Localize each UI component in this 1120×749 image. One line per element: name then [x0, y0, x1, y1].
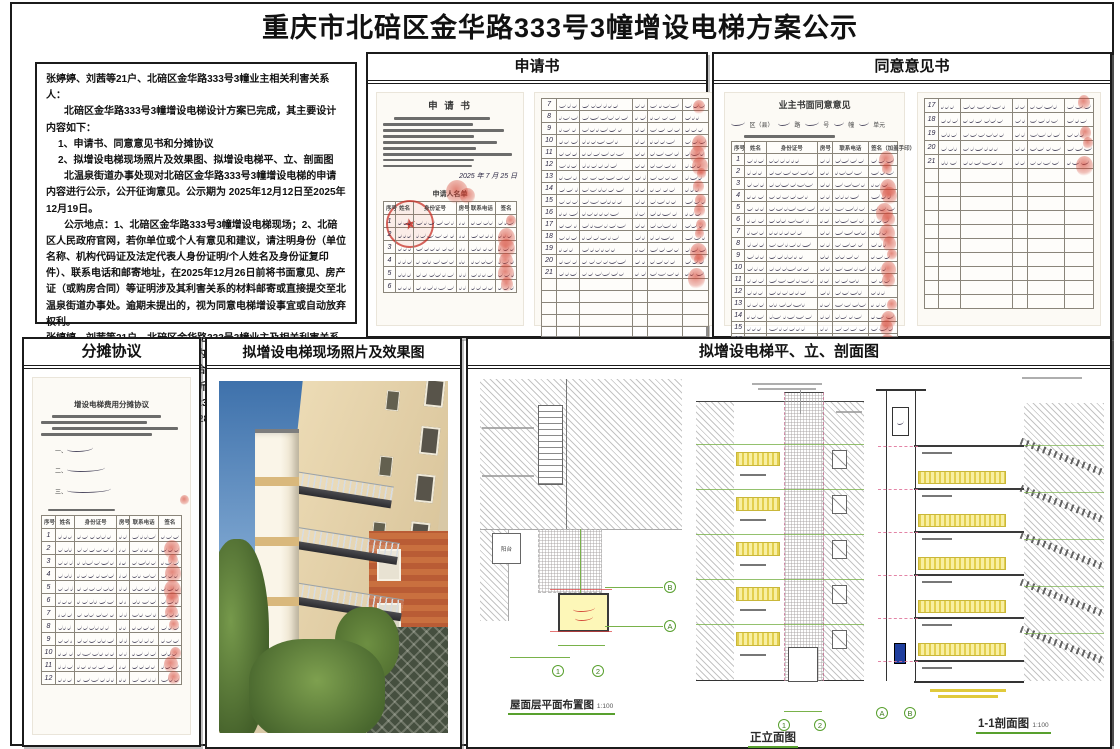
handwriting-mark	[635, 149, 640, 156]
table-cell	[869, 262, 897, 273]
handwriting-mark	[824, 324, 828, 331]
handwriting-mark	[663, 221, 671, 228]
table-cell	[939, 253, 961, 266]
handwriting-mark	[140, 545, 143, 552]
table-cell	[767, 310, 818, 321]
table-header-cell: 房号	[117, 516, 130, 528]
handwriting-mark	[124, 610, 127, 617]
cost-sharing-note	[41, 509, 126, 512]
handwriting-mark	[608, 101, 612, 108]
table-cell	[818, 214, 833, 225]
handwriting-mark	[783, 324, 788, 331]
table-cell	[56, 581, 75, 593]
handwriting-mark	[504, 270, 510, 277]
table-cell	[767, 286, 818, 297]
handwriting-mark	[671, 173, 679, 180]
handwriting-mark	[507, 231, 512, 238]
handwriting-mark	[824, 300, 830, 307]
table-cell	[75, 620, 117, 632]
handwriting-mark	[119, 662, 121, 669]
handwriting-mark	[871, 240, 877, 247]
table-cell	[557, 123, 580, 134]
handwriting-mark	[820, 228, 825, 235]
handwriting-mark	[77, 584, 81, 591]
handwriting-mark	[564, 257, 571, 264]
handwriting-mark	[759, 228, 764, 235]
table-cell	[159, 542, 181, 554]
table-cell	[159, 659, 181, 671]
table-cell	[961, 225, 1013, 238]
handwriting-mark	[850, 192, 859, 199]
table-cell	[414, 267, 456, 279]
handwriting-mark	[89, 584, 95, 591]
handwriting-mark	[796, 180, 804, 188]
handwriting-mark	[123, 584, 127, 591]
handwriting-mark	[858, 240, 863, 247]
handwriting-mark	[169, 610, 174, 617]
handwriting-mark	[596, 101, 602, 108]
table-cell	[833, 214, 869, 225]
handwriting-mark	[507, 218, 514, 225]
handwriting-mark	[769, 288, 776, 295]
table-cell	[633, 255, 648, 266]
handwriting-mark	[131, 584, 136, 591]
handwriting-mark	[608, 113, 614, 120]
table-cell: 8	[732, 238, 745, 249]
handwriting-mark	[1030, 116, 1038, 123]
handwriting-mark	[563, 245, 568, 252]
table-cell: 5	[42, 581, 56, 593]
handwriting-mark	[165, 557, 173, 564]
table-cell	[396, 228, 414, 240]
handwriting-mark	[940, 102, 944, 109]
table-cell	[580, 171, 633, 182]
handwriting-mark	[758, 192, 764, 199]
handwriting-mark	[757, 312, 764, 319]
table-row: 3	[732, 178, 897, 190]
table-cell	[833, 154, 869, 165]
handwriting-mark	[639, 245, 646, 252]
handwriting-mark	[1072, 158, 1080, 165]
handwriting-mark	[881, 300, 886, 307]
handwriting-mark	[984, 144, 988, 151]
table-cell	[869, 250, 897, 261]
handwriting-mark	[786, 276, 794, 284]
applicant-signature-table: 序号姓名身份证号房号联系电话签名123456	[383, 201, 517, 293]
handwriting-mark	[820, 324, 824, 331]
handwriting-mark	[777, 276, 786, 284]
handwriting-mark	[984, 116, 990, 123]
handwriting-mark	[790, 192, 796, 199]
table-cell	[396, 267, 414, 279]
handwriting-mark	[846, 252, 853, 259]
table-cell	[130, 672, 159, 684]
table-cell: 1	[384, 215, 396, 227]
handwriting-mark	[886, 312, 894, 319]
handwriting-mark	[102, 610, 109, 617]
elevation-shaft-column	[784, 392, 824, 681]
table-cell	[396, 215, 414, 227]
table-cell	[767, 274, 818, 285]
table-row: 12	[542, 159, 708, 171]
handwriting-mark	[67, 609, 73, 616]
table-empty-row	[542, 315, 708, 327]
photo-bush	[249, 639, 385, 733]
handwriting-mark	[940, 144, 946, 151]
table-cell	[580, 159, 633, 170]
handwriting-mark	[131, 531, 139, 538]
table-cell: 9	[42, 633, 56, 645]
handwriting-mark	[805, 216, 808, 223]
table-cell: 20	[925, 141, 938, 154]
table-cell	[557, 111, 580, 122]
handwriting-mark	[1079, 130, 1085, 137]
table-cell	[648, 135, 683, 146]
table-cell	[75, 555, 117, 567]
handwriting-mark	[470, 244, 476, 251]
handwriting-mark	[810, 276, 815, 283]
table-cell	[56, 594, 75, 606]
table-row: 7	[42, 607, 181, 620]
handwriting-mark	[144, 532, 148, 539]
handwriting-mark	[795, 156, 800, 163]
handwriting-mark	[151, 662, 155, 669]
table-cell	[633, 279, 648, 290]
handwriting-mark	[446, 270, 453, 277]
handwriting-mark	[758, 156, 764, 163]
handwriting-mark	[699, 245, 706, 252]
handwriting-mark	[775, 180, 781, 187]
table-cell	[557, 171, 580, 182]
handwriting-mark	[641, 161, 645, 168]
table-cell	[130, 568, 159, 580]
handwriting-mark	[656, 257, 664, 264]
consent-scan-left-page: 业主书面同意意见 区（县） 路 号 幢 单元 序号姓名身份证号房号联系电话签名（…	[724, 92, 905, 326]
handwriting-mark	[103, 584, 109, 591]
table-cell	[130, 594, 159, 606]
consent-scan-right-page: 1718192021	[917, 92, 1101, 326]
handwriting-mark	[98, 662, 106, 669]
table-cell	[557, 243, 580, 254]
table-cell	[1065, 141, 1094, 154]
handwriting-mark	[161, 636, 165, 643]
table-cell	[683, 99, 708, 110]
handwriting-mark	[566, 185, 573, 192]
handwriting-mark	[844, 264, 853, 271]
handwriting-mark	[664, 161, 671, 168]
table-cell	[961, 99, 1013, 112]
handwriting-mark	[883, 216, 889, 223]
handwriting-mark	[694, 233, 701, 240]
handwriting-mark	[408, 283, 412, 290]
handwriting-mark	[883, 240, 886, 247]
table-row: 2	[42, 542, 181, 555]
handwriting-mark	[841, 156, 850, 164]
handwriting-mark	[131, 609, 138, 616]
table-cell: 2	[732, 166, 745, 177]
handwriting-mark	[124, 636, 127, 643]
handwriting-mark	[777, 288, 781, 295]
table-cell	[648, 159, 683, 170]
handwriting-mark	[797, 204, 806, 211]
handwriting-mark	[856, 276, 859, 283]
handwriting-mark	[105, 623, 109, 630]
owner-consent-signature-table-continued: 1718192021	[924, 98, 1094, 309]
handwriting-mark	[658, 173, 665, 180]
handwriting-mark	[1075, 102, 1083, 109]
handwriting-mark	[675, 269, 680, 276]
table-cell	[1065, 197, 1094, 210]
handwriting-mark	[600, 233, 607, 240]
table-cell: 4	[732, 190, 745, 201]
handwriting-mark	[685, 125, 690, 132]
handwriting-mark	[88, 596, 93, 603]
handwriting-mark	[842, 288, 849, 295]
handwriting-mark	[1046, 116, 1050, 123]
table-cell	[414, 254, 456, 266]
table-cell	[130, 633, 159, 645]
handwriting-mark	[805, 180, 813, 187]
table-empty-row	[542, 291, 708, 303]
handwriting-mark	[768, 276, 776, 283]
elevation-floor-line	[696, 489, 864, 490]
handwriting-mark	[567, 161, 570, 168]
handwriting-mark	[773, 312, 782, 319]
handwriting-mark	[598, 173, 605, 180]
handwriting-mark	[436, 244, 440, 251]
table-cell	[925, 225, 938, 238]
handwriting-mark	[671, 209, 676, 216]
handwriting-mark	[641, 257, 645, 264]
handwriting-mark	[797, 192, 804, 199]
handwriting-mark	[498, 244, 502, 251]
handwriting-mark	[470, 270, 477, 277]
handwriting-mark	[635, 173, 641, 180]
handwriting-mark	[879, 324, 888, 331]
handwriting-mark	[479, 231, 484, 238]
table-cell: 7	[542, 99, 557, 110]
table-cell	[833, 298, 869, 309]
handwriting-mark	[161, 545, 167, 552]
section-floor-slab	[914, 445, 1024, 447]
table-cell	[580, 111, 633, 122]
handwriting-mark	[672, 221, 677, 228]
handwriting-mark	[747, 156, 753, 163]
elevation-louver-band	[736, 587, 780, 601]
cost-sharing-scan-page: 增设电梯费用分摊协议 一、 二、 三、 序号姓名身份证号房号联系电话签名1234…	[32, 377, 191, 735]
table-cell	[1028, 127, 1065, 140]
section-level-line	[878, 661, 918, 662]
table-cell	[396, 241, 414, 253]
handwriting-mark	[609, 221, 616, 228]
handwriting-mark	[825, 228, 829, 235]
table-cell	[767, 202, 818, 213]
table-cell	[939, 169, 961, 182]
table-header-cell: 联系电话	[833, 142, 869, 153]
table-empty-row	[925, 183, 1093, 197]
handwriting-mark	[788, 216, 796, 223]
handwriting-mark	[566, 233, 570, 240]
handwriting-mark	[820, 216, 824, 223]
table-cell	[557, 279, 580, 290]
handwriting-mark	[563, 113, 570, 120]
handwriting-mark	[109, 558, 114, 565]
table-cell	[633, 291, 648, 302]
table-row: 1	[42, 529, 181, 542]
handwriting-mark	[657, 221, 663, 228]
handwriting-mark	[826, 156, 830, 163]
handwriting-mark	[769, 216, 775, 223]
section-grid-bubble-B: B	[904, 707, 916, 719]
handwriting-mark	[975, 116, 983, 123]
handwriting-mark	[1037, 158, 1042, 165]
handwriting-mark	[599, 197, 606, 204]
handwriting-mark	[144, 648, 149, 655]
handwriting-mark	[124, 597, 127, 604]
handwriting-mark	[970, 144, 974, 151]
handwriting-mark	[582, 209, 586, 216]
table-header-cell: 姓名	[396, 202, 414, 214]
table-cell	[159, 607, 181, 619]
table-cell	[1013, 169, 1028, 182]
table-cell	[683, 291, 708, 302]
handwriting-mark	[635, 197, 640, 204]
handwriting-mark	[145, 610, 152, 617]
table-cell	[1028, 155, 1065, 168]
handwriting-mark	[781, 216, 786, 223]
handwriting-mark	[144, 636, 149, 643]
table-cell	[1028, 141, 1065, 154]
handwriting-mark	[422, 270, 427, 277]
table-cell	[683, 195, 708, 206]
handwriting-mark	[799, 252, 804, 259]
handwriting-mark	[775, 264, 781, 271]
handwriting-mark	[844, 228, 853, 235]
table-cell	[1028, 281, 1065, 294]
table-cell	[414, 241, 456, 253]
table-cell	[1065, 113, 1094, 126]
handwriting-mark	[650, 245, 658, 252]
handwriting-mark	[77, 597, 80, 604]
handwriting-mark	[670, 101, 679, 108]
handwriting-mark	[747, 240, 751, 247]
handwriting-mark	[582, 137, 586, 144]
table-empty-row	[925, 169, 1093, 183]
handwriting-mark	[884, 252, 891, 259]
table-cell	[1028, 183, 1065, 196]
table-cell	[1013, 281, 1028, 294]
handwriting-mark	[650, 149, 655, 156]
handwriting-mark	[826, 240, 830, 247]
handwriting-mark	[483, 244, 487, 251]
handwriting-mark	[835, 300, 844, 307]
handwriting-mark	[834, 240, 840, 247]
table-cell	[633, 231, 648, 242]
table-cell	[925, 239, 938, 252]
table-cell	[1065, 267, 1094, 280]
handwriting-mark	[849, 288, 857, 295]
handwriting-mark	[458, 231, 461, 238]
table-cell	[580, 123, 633, 134]
table-cell	[925, 281, 938, 294]
table-cell: 21	[542, 267, 557, 278]
table-cell	[833, 262, 869, 273]
handwriting-mark	[820, 276, 824, 283]
elevation-floor-label	[740, 474, 766, 476]
table-row: 10	[542, 135, 708, 147]
table-cell	[117, 607, 130, 619]
handwriting-mark	[605, 137, 613, 144]
table-cell	[939, 239, 961, 252]
handwriting-mark	[871, 192, 880, 199]
handwriting-mark	[476, 283, 481, 290]
cost-sharing-panel-title: 分摊协议	[24, 339, 199, 369]
handwriting-mark	[671, 197, 676, 204]
table-cell	[580, 183, 633, 194]
table-row: 9	[732, 250, 897, 262]
handwriting-mark	[635, 137, 639, 144]
scanned-text-line	[394, 117, 491, 120]
notice-paragraph: 2、拟增设电梯现场照片及效果图、拟增设电梯平、立、剖面图	[46, 153, 346, 169]
handwriting-mark	[650, 269, 657, 276]
handwriting-mark	[498, 270, 503, 277]
handwriting-mark	[88, 544, 95, 551]
handwriting-mark	[698, 125, 703, 132]
handwriting-mark	[861, 228, 866, 235]
table-cell	[414, 215, 456, 227]
handwriting-mark	[470, 283, 475, 290]
handwriting-mark	[416, 244, 423, 251]
elevation-floor-line	[696, 534, 864, 535]
table-row: 15	[732, 322, 897, 334]
site-photo	[219, 381, 448, 733]
handwriting-mark	[879, 204, 886, 211]
table-row: 13	[542, 171, 708, 183]
table-cell	[833, 202, 869, 213]
table-cell	[648, 99, 683, 110]
handwriting-mark	[604, 161, 609, 168]
handwriting-mark	[657, 269, 666, 277]
handwriting-mark	[100, 623, 104, 630]
handwriting-mark	[174, 545, 179, 552]
handwriting-mark	[685, 257, 691, 264]
handwriting-mark	[589, 221, 593, 228]
table-empty-row	[925, 267, 1093, 281]
table-row: 4	[732, 190, 897, 202]
handwriting-mark	[69, 571, 72, 578]
handwriting-mark	[701, 197, 705, 204]
handwriting-mark	[662, 113, 669, 120]
handwriting-mark	[587, 149, 592, 156]
handwriting-mark	[999, 130, 1004, 137]
handwriting-mark	[150, 597, 156, 604]
table-cell	[925, 169, 938, 182]
handwriting-mark	[840, 252, 845, 259]
handwriting-mark	[820, 264, 825, 271]
scanned-text-line	[41, 433, 152, 436]
handwriting-mark	[820, 300, 823, 307]
handwriting-mark	[691, 245, 698, 252]
table-cell: 13	[732, 298, 745, 309]
table-cell	[469, 241, 497, 253]
handwriting-mark	[582, 173, 589, 180]
handwriting-mark	[1067, 102, 1074, 109]
handwriting-mark	[610, 149, 615, 156]
handwriting-mark	[559, 173, 563, 180]
table-cell	[745, 262, 766, 273]
handwriting-mark	[82, 584, 88, 591]
table-cell	[633, 243, 648, 254]
